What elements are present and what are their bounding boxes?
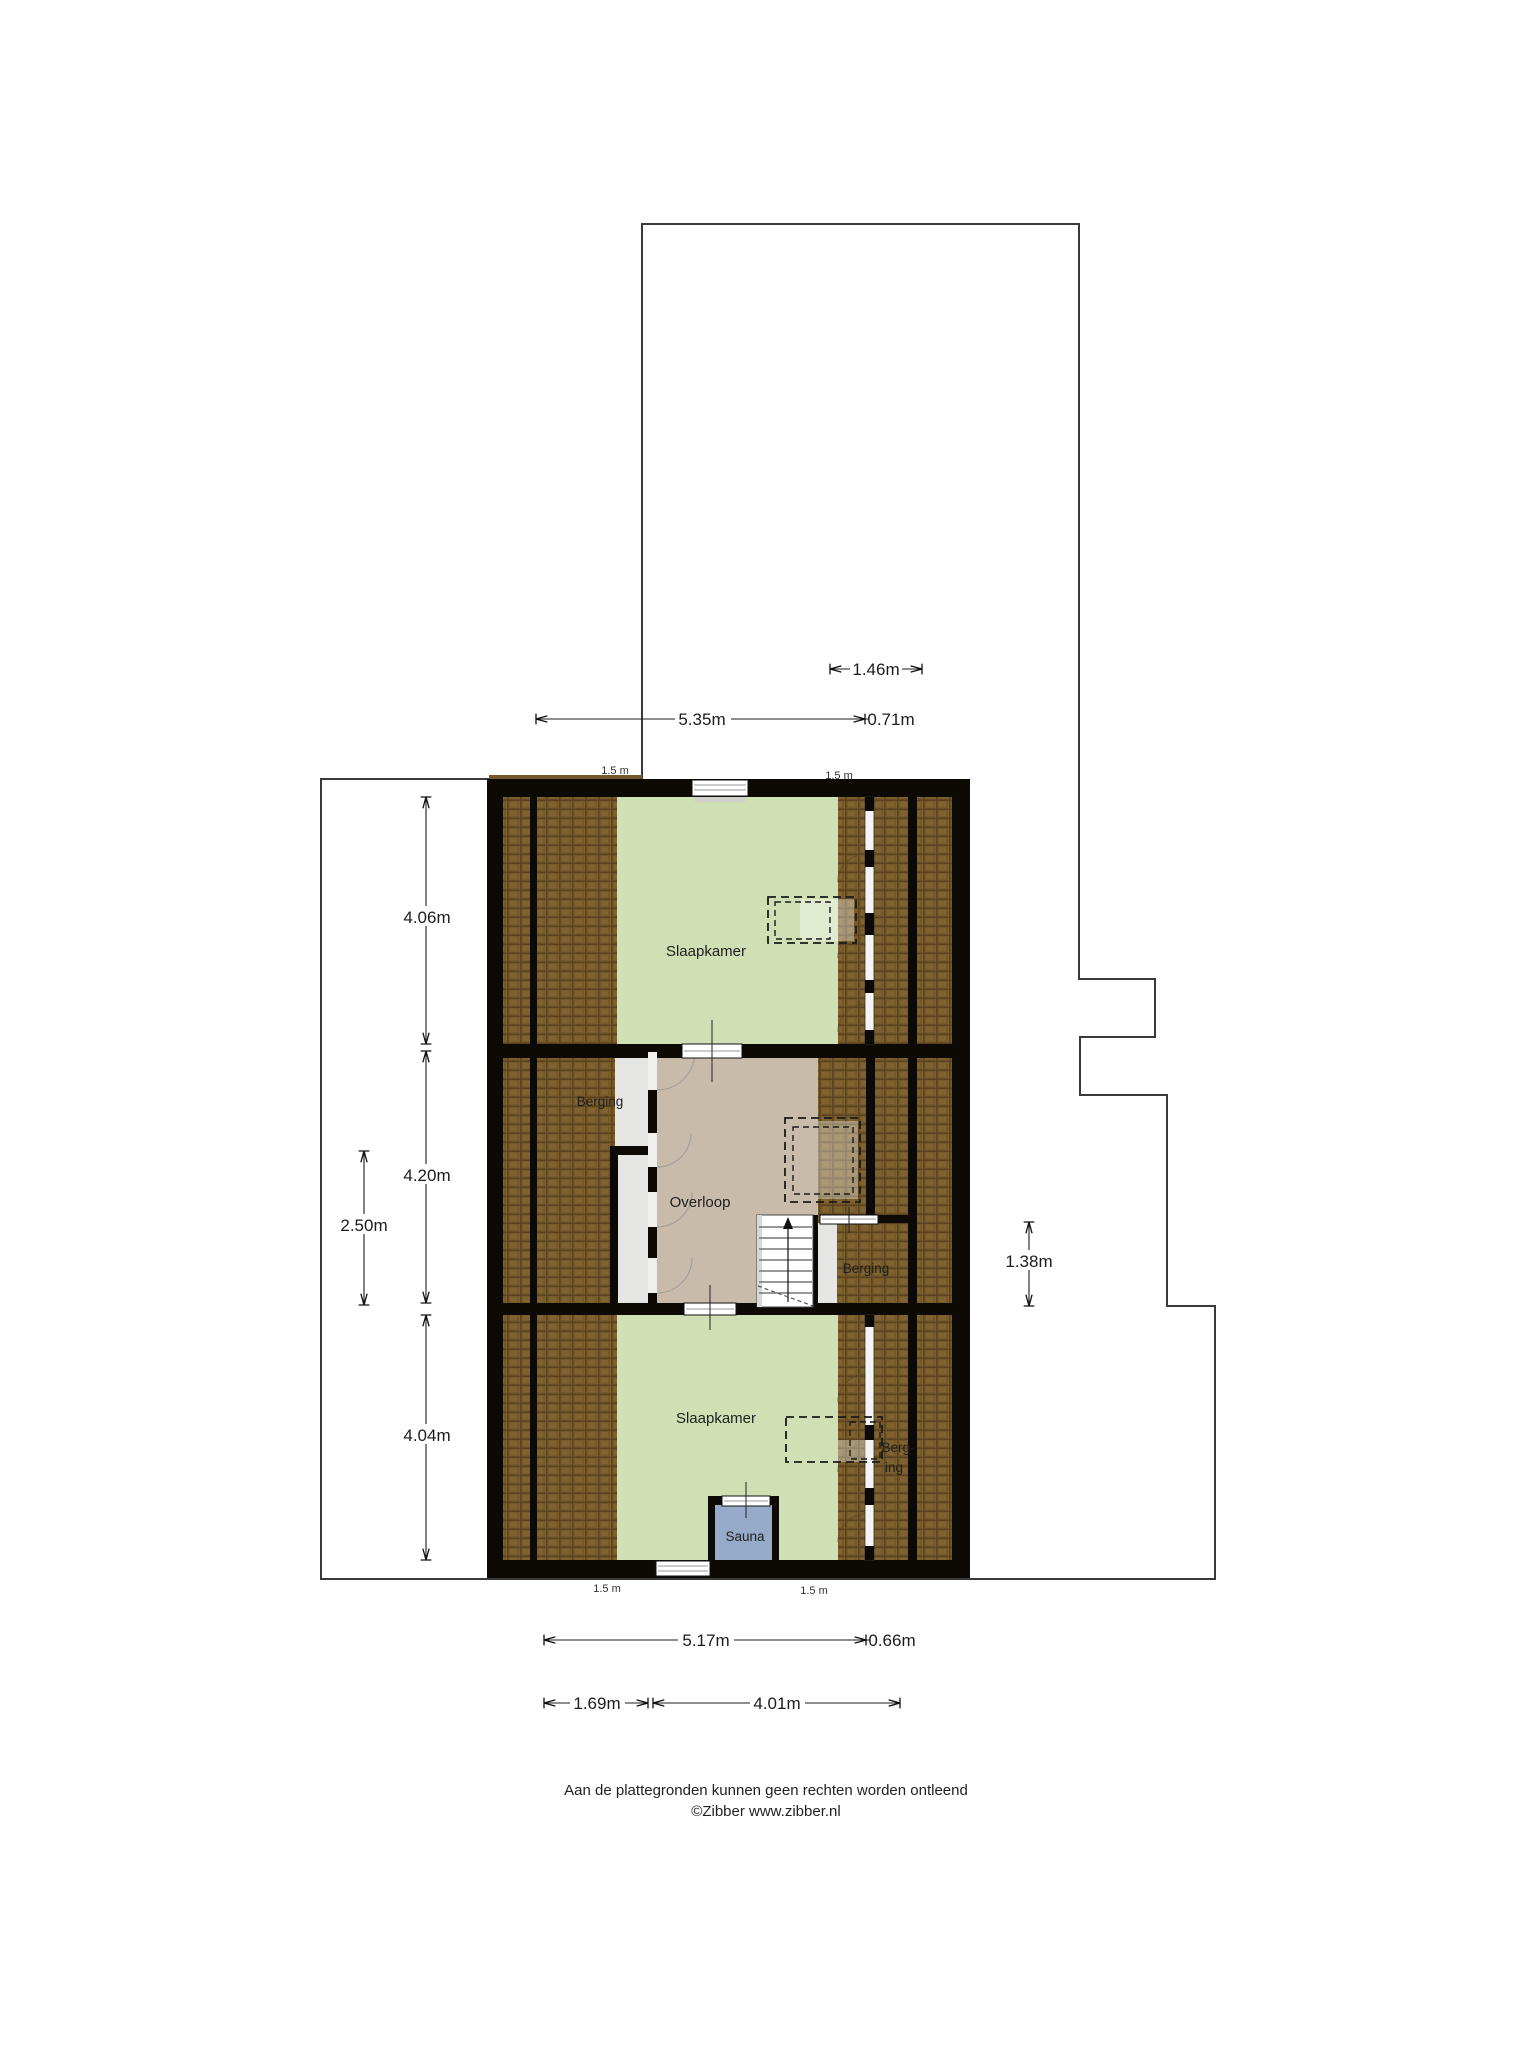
footer-copyright: ©Zibber www.zibber.nl [691, 1803, 840, 1820]
knee-window-strip-top [865, 797, 874, 1044]
knee-window-strip-bottom [865, 1315, 874, 1560]
dim-bottom-seg-mid: 4.01m [753, 1694, 800, 1713]
floorplan-svg: Slaapkamer Berging Overloop Berging Slaa… [0, 0, 1536, 2048]
footer-disclaimer: Aan de plattegronden kunnen geen rechten… [564, 1782, 968, 1799]
dim-knee-top-left: 1.5 m [601, 765, 629, 777]
dim-left-width: 2.50m [340, 1216, 387, 1235]
window-top [692, 780, 748, 802]
stairs-right-wall [813, 1215, 818, 1307]
stairs [757, 1215, 813, 1307]
room-berging-right-floor [818, 1223, 837, 1307]
dim-top-offset: 1.46m [852, 660, 899, 679]
berging-left-wall-h [610, 1146, 648, 1155]
dim-room-top-height: 4.06m [403, 908, 450, 927]
dim-right-height: 1.38m [1005, 1252, 1052, 1271]
railing-right-seg [878, 1215, 908, 1223]
label-berging-left: Berging [577, 1094, 624, 1109]
label-slaapkamer-bottom: Slaapkamer [676, 1410, 756, 1427]
label-overloop: Overloop [670, 1194, 731, 1211]
berging-left-wall-v [610, 1146, 618, 1307]
label-berging-bottom-line2: ing [885, 1460, 903, 1475]
dim-bottom-right: 0.66m [868, 1631, 915, 1650]
knee-wall-left [530, 797, 537, 1560]
label-berging-right: Berging [843, 1261, 890, 1276]
overloop-right-wall [866, 1058, 875, 1218]
dim-knee-bottom-left: 1.5 m [593, 1583, 621, 1595]
label-slaapkamer-top: Slaapkamer [666, 943, 746, 960]
dim-top-width: 5.35m [678, 710, 725, 729]
dim-knee-bottom-right: 1.5 m [800, 1585, 828, 1597]
dim-knee-top-right: 1.5 m [825, 770, 853, 782]
dim-landing-height: 4.20m [403, 1166, 450, 1185]
dim-top-right: 0.71m [867, 710, 914, 729]
dim-room-bottom-height: 4.04m [403, 1426, 450, 1445]
dim-bottom-seg-left: 1.69m [573, 1694, 620, 1713]
window-bottom [656, 1561, 710, 1576]
label-berging-bottom-line1: Berg- [881, 1440, 914, 1455]
floorplan-page: Slaapkamer Berging Overloop Berging Slaa… [0, 0, 1536, 2048]
dim-bottom-width: 5.17m [682, 1631, 729, 1650]
label-sauna: Sauna [725, 1529, 765, 1544]
